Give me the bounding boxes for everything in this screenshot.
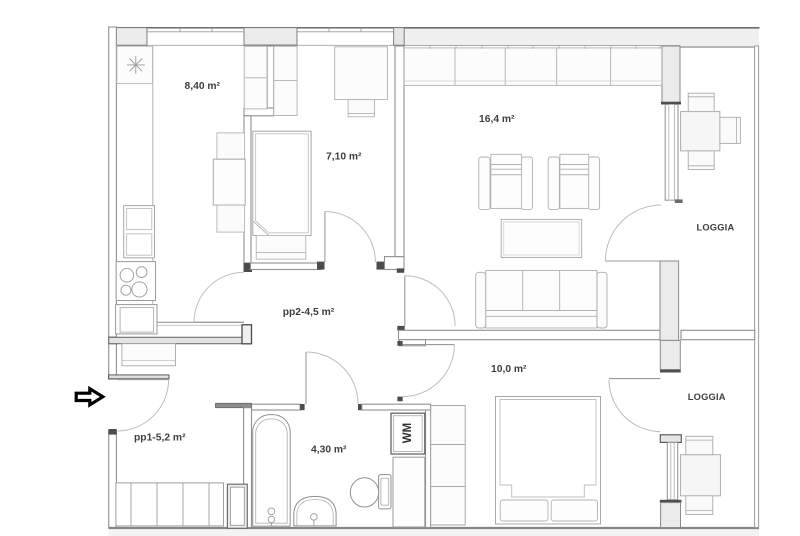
- svg-text:7,10 m²: 7,10 m²: [326, 151, 362, 162]
- svg-text:16,4 m²: 16,4 m²: [479, 114, 515, 125]
- svg-text:LOGGIA: LOGGIA: [697, 223, 735, 233]
- svg-text:pp1-5,2 m²: pp1-5,2 m²: [134, 433, 186, 444]
- svg-text:pp2-4,5 m²: pp2-4,5 m²: [283, 307, 335, 318]
- svg-text:LOGGIA: LOGGIA: [688, 392, 726, 402]
- svg-text:8,40 m²: 8,40 m²: [185, 81, 221, 92]
- svg-text:4,30 m²: 4,30 m²: [311, 444, 347, 455]
- svg-text:WM: WM: [402, 423, 414, 443]
- svg-text:10,0 m²: 10,0 m²: [491, 364, 527, 375]
